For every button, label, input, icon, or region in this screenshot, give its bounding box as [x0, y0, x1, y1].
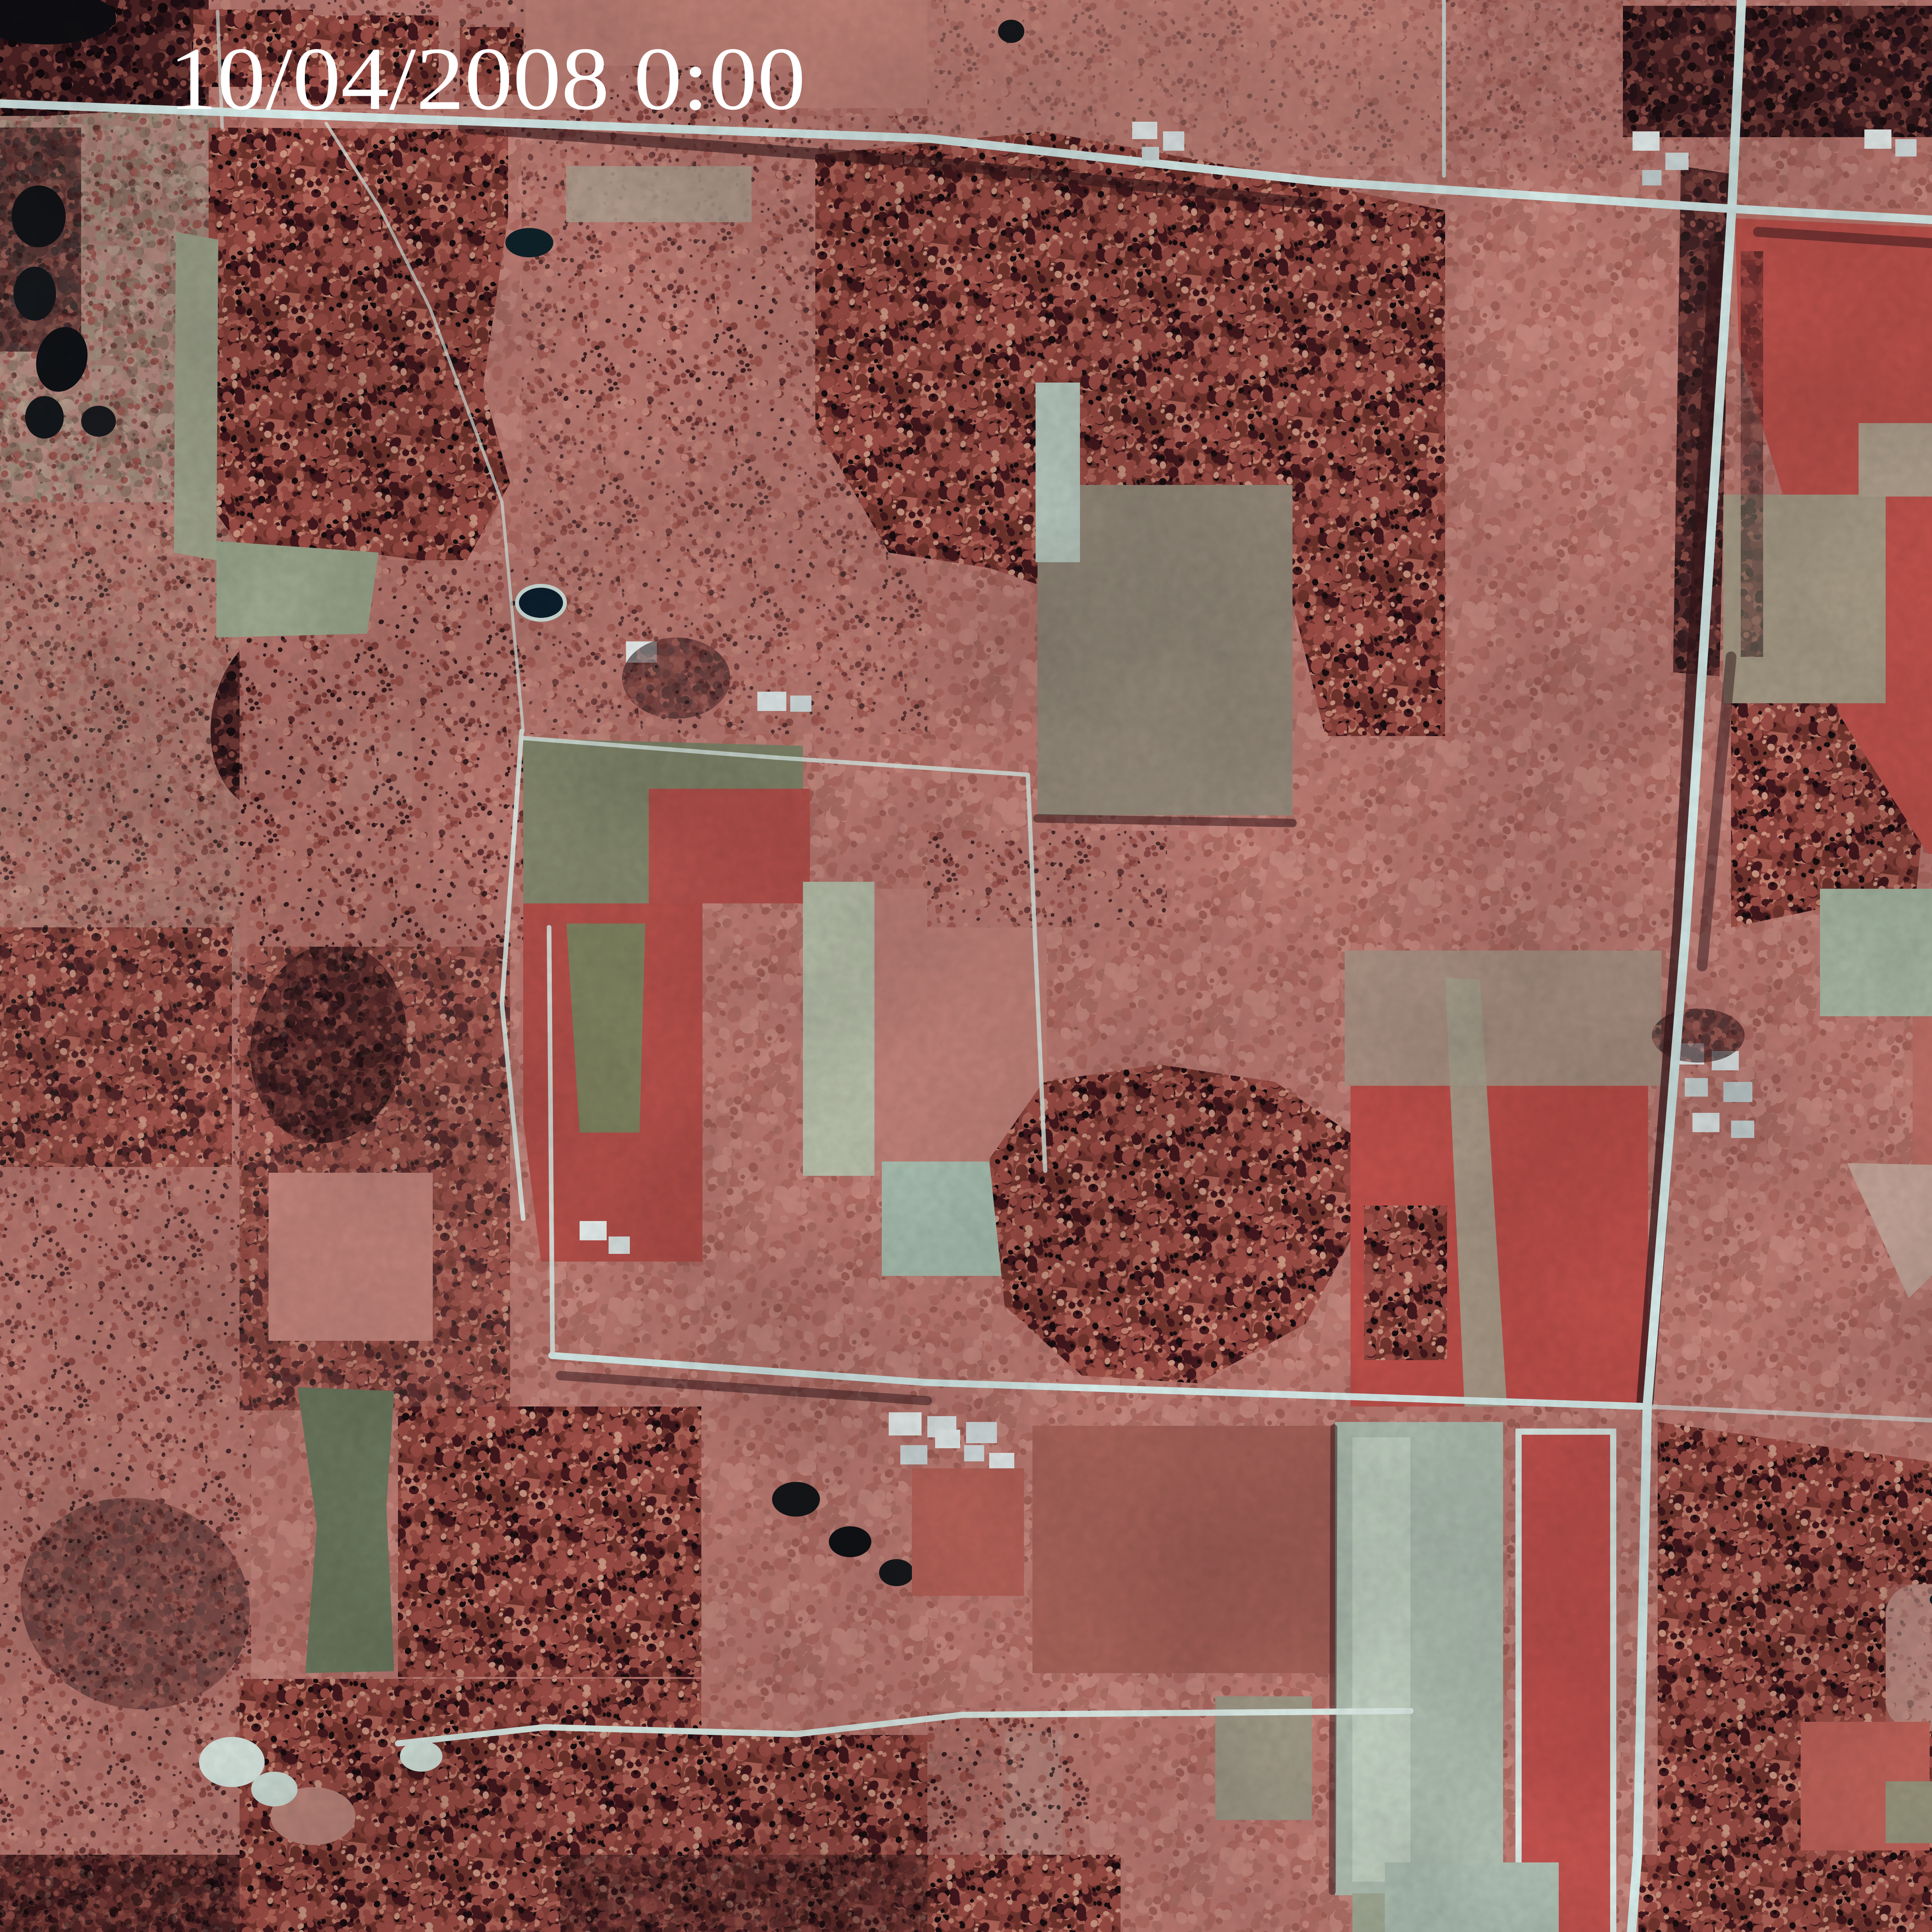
svg-text:10/04/2008 0:00: 10/04/2008 0:00 — [169, 29, 806, 129]
